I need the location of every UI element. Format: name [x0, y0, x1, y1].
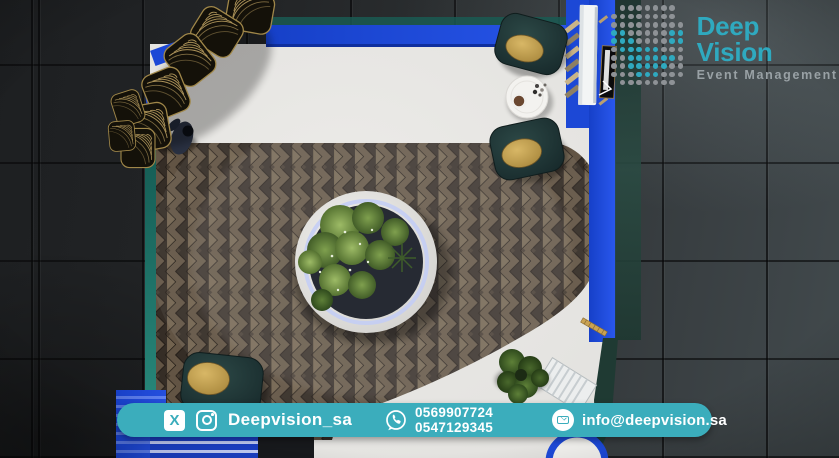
poster: Deep Vision Event Management X Deepvisio…	[0, 0, 839, 458]
logo-dot-matrix-icon	[610, 2, 685, 87]
whatsapp-icon[interactable]	[385, 409, 407, 431]
contact-bar: X Deepvision_sa 0569907724 0547129345 in…	[117, 403, 712, 437]
email-address[interactable]: info@deepvision.sa	[582, 412, 727, 429]
social-links[interactable]: X Deepvision_sa	[164, 403, 352, 437]
phone-contact[interactable]: 0569907724 0547129345	[385, 403, 493, 437]
brand-name: Deep Vision	[697, 13, 839, 65]
social-handle[interactable]: Deepvision_sa	[228, 410, 352, 430]
phone-numbers: 0569907724 0547129345	[415, 405, 493, 435]
email-contact[interactable]: info@deepvision.sa	[552, 403, 727, 437]
brand-logo: Deep Vision Event Management	[610, 2, 839, 87]
brand-tagline: Event Management	[697, 68, 839, 82]
instagram-icon[interactable]	[196, 410, 217, 431]
logo-text: Deep Vision Event Management	[697, 2, 839, 82]
phone-number-2[interactable]: 0547129345	[415, 420, 493, 435]
phone-number-1[interactable]: 0569907724	[415, 405, 493, 420]
email-icon[interactable]	[552, 409, 574, 431]
x-twitter-icon[interactable]: X	[164, 410, 185, 431]
